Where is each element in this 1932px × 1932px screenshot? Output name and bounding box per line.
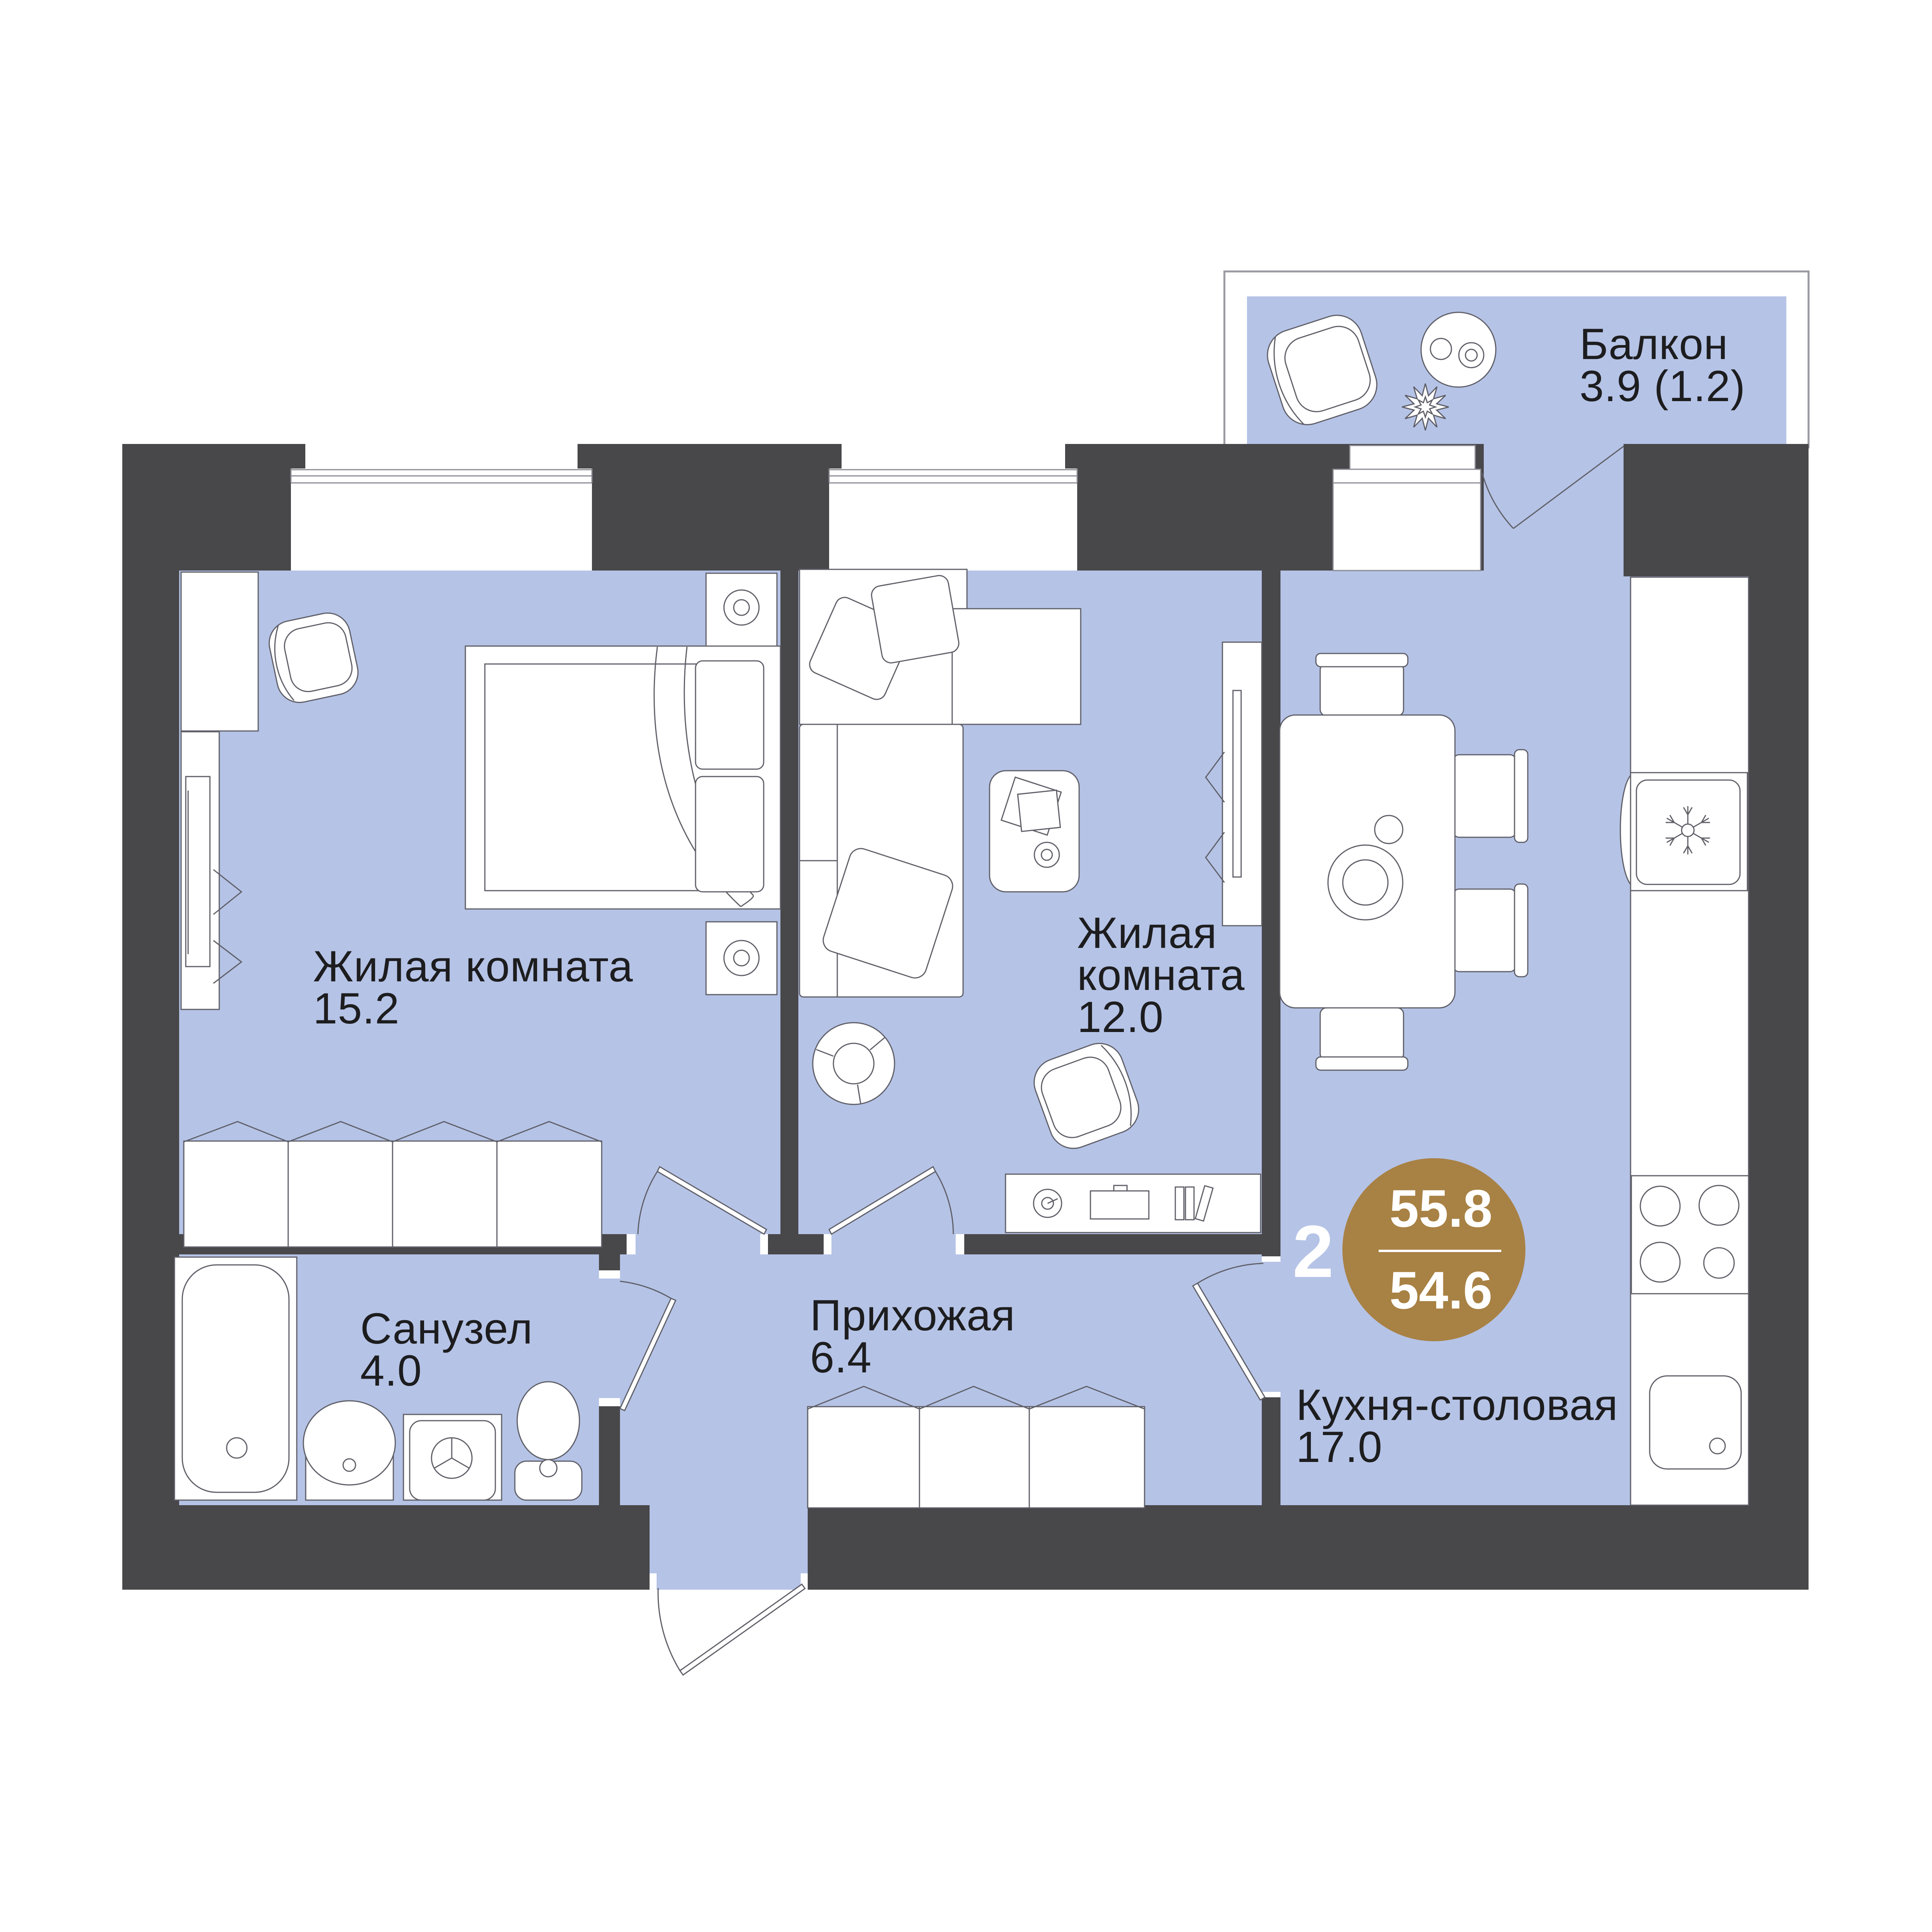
svg-text:54.6: 54.6 [1390, 1261, 1493, 1320]
svg-text:комната: комната [1077, 951, 1245, 999]
svg-text:17.0: 17.0 [1296, 1423, 1383, 1471]
svg-text:Кухня-столовая: Кухня-столовая [1296, 1381, 1618, 1429]
svg-text:3.9 (1.2): 3.9 (1.2) [1580, 362, 1745, 410]
svg-text:Санузел: Санузел [360, 1304, 533, 1353]
svg-text:Прихожая: Прихожая [810, 1291, 1015, 1340]
svg-text:6.4: 6.4 [810, 1333, 872, 1382]
svg-text:Жилая комната: Жилая комната [313, 942, 633, 991]
svg-text:Балкон: Балкон [1580, 320, 1728, 368]
svg-text:55.8: 55.8 [1390, 1179, 1493, 1238]
svg-text:4.0: 4.0 [360, 1346, 422, 1395]
svg-text:2: 2 [1293, 1210, 1334, 1293]
svg-text:15.2: 15.2 [313, 984, 400, 1033]
svg-text:Жилая: Жилая [1077, 909, 1217, 957]
svg-text:12.0: 12.0 [1077, 993, 1164, 1041]
